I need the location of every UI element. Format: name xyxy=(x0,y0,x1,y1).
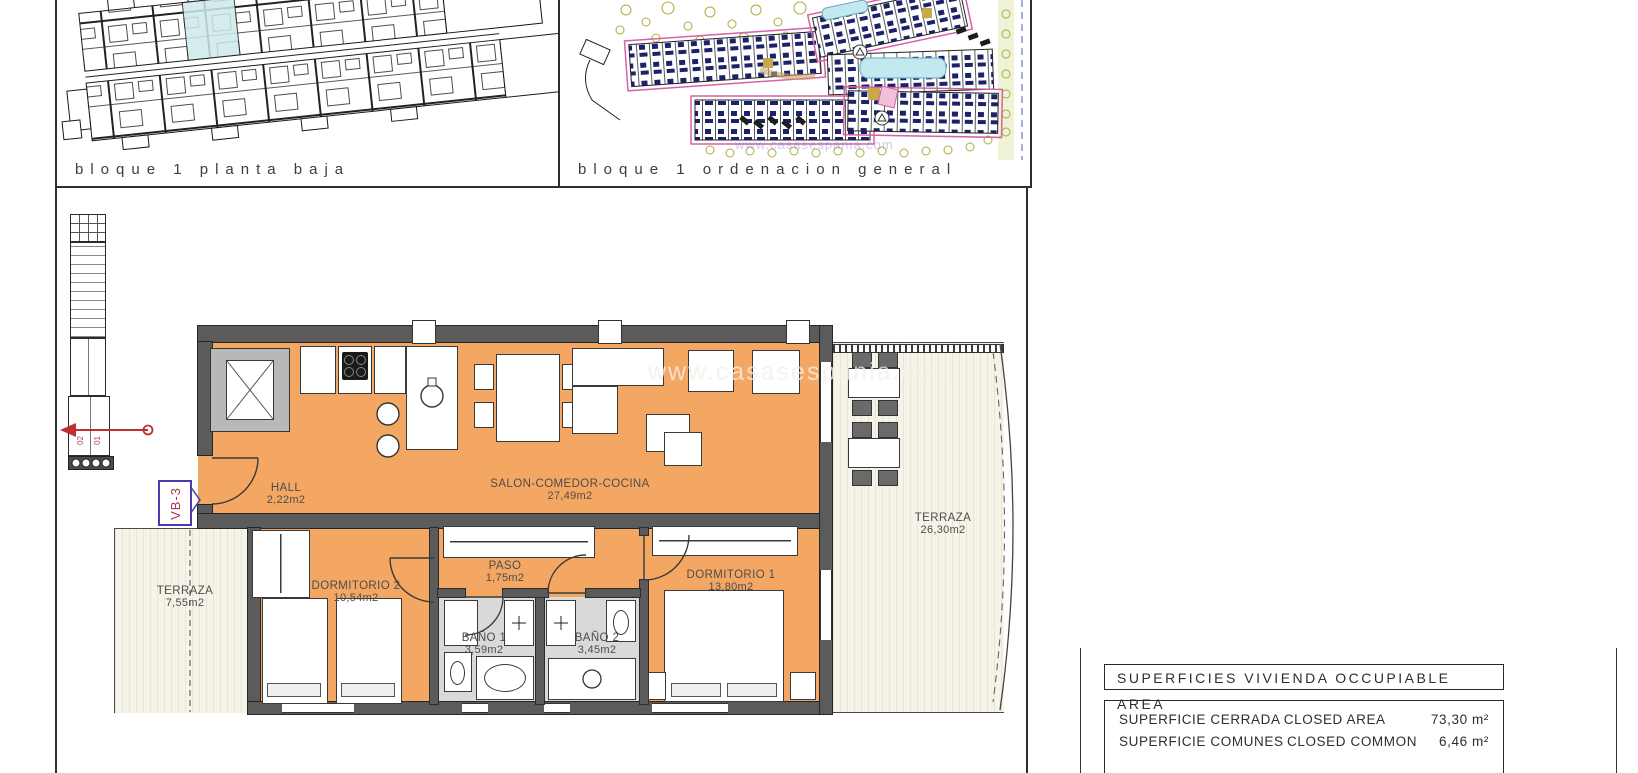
row-label-en: CLOSED COMMON xyxy=(1287,734,1437,749)
label-terraza-right: TERRAZA26,30m2 xyxy=(915,512,971,536)
pillar xyxy=(412,320,436,344)
row-value: 6,46 m² xyxy=(1437,734,1489,749)
areas-table-title: SUPERFICIES VIVIENDA OCCUPIABLE AREA xyxy=(1104,664,1504,690)
label-paso: PASO1,75m2 xyxy=(486,560,525,584)
nightstand xyxy=(790,672,816,700)
hall-closet xyxy=(443,526,595,558)
side-chair xyxy=(664,432,702,466)
label-dormitorio1: DORMITORIO 113,80m2 xyxy=(687,569,776,593)
row-label-es: SUPERFICIE COMUNES xyxy=(1119,734,1287,749)
toilet-bath1 xyxy=(444,652,472,692)
chair xyxy=(474,364,494,390)
partition-paso-c xyxy=(586,589,640,597)
label-bano2: BAÑO 23,45m2 xyxy=(575,632,620,656)
row-label-es: SUPERFICIE CERRADA xyxy=(1119,712,1284,727)
partition-dorm2 xyxy=(430,528,438,704)
dorm1-closet xyxy=(652,526,798,556)
terrace-left xyxy=(114,528,248,713)
stair-flight xyxy=(70,242,106,338)
dining-table xyxy=(496,354,560,442)
label-hall: HALL2,22m2 xyxy=(267,482,306,506)
watermark-site: www.casasespania.com xyxy=(735,137,894,152)
terrace-chair xyxy=(878,470,898,486)
pillar xyxy=(786,320,810,344)
wall-west-stub xyxy=(198,505,212,514)
sofa-chaise xyxy=(572,386,618,434)
caption-planta-baja: bloque 1 planta baja xyxy=(75,161,350,178)
unit-tag-vb3: VB-3 xyxy=(158,480,192,526)
panel-block1-general-plan: bloque 1 ordenacion general xyxy=(558,0,1032,188)
row-value: 73,30 m² xyxy=(1431,712,1489,727)
nightstand xyxy=(648,672,666,700)
elevator-box xyxy=(70,214,106,242)
stair-mark-02: 02 xyxy=(76,436,85,445)
building-outline-group xyxy=(57,0,558,156)
stair-lower xyxy=(68,396,110,456)
table-row: SUPERFICIE COMUNES CLOSED COMMON 6,46 m² xyxy=(1119,734,1489,749)
partition-baths xyxy=(536,597,544,704)
watermark-plan: www.casasespania.com xyxy=(648,358,955,387)
window-bath2 xyxy=(544,703,570,713)
label-dormitorio2: DORMITORIO 210,54m2 xyxy=(312,580,401,604)
fridge xyxy=(300,346,336,394)
window-bath1 xyxy=(462,703,488,713)
terrace-chair xyxy=(878,422,898,438)
areas-table: SUPERFICIE CERRADA CLOSED AREA 73,30 m² … xyxy=(1104,700,1504,773)
terrace-table xyxy=(848,438,900,468)
bed-double xyxy=(664,590,784,702)
shower-tray xyxy=(548,658,636,700)
sink-counter xyxy=(406,346,458,450)
site-color-drawing xyxy=(560,0,1030,160)
terrace-chair xyxy=(852,422,872,438)
partition-paso-b xyxy=(503,589,548,597)
sheet-frame-line-left xyxy=(1080,648,1081,773)
architectural-sheet: { "captions": { "left_panel": "bloque 1 … xyxy=(0,0,1638,773)
table-row: SUPERFICIE CERRADA CLOSED AREA 73,30 m² xyxy=(1119,712,1489,727)
panel-block1-ground-plan: bloque 1 planta baja xyxy=(55,0,560,188)
kitchen-counter xyxy=(374,346,406,394)
site-parcel-group xyxy=(580,0,1022,160)
partition-dorm1-top xyxy=(640,528,648,535)
dorm2-closet xyxy=(252,530,310,598)
wall-north xyxy=(198,326,832,342)
threshold-band xyxy=(68,456,114,470)
window-dorm1 xyxy=(652,703,728,713)
row-label-en: CLOSED AREA xyxy=(1284,712,1431,727)
label-bano1: BAÑO 13,59m2 xyxy=(462,632,507,656)
hob xyxy=(342,352,368,380)
terrace-chair xyxy=(852,470,872,486)
caption-ordenacion-general: bloque 1 ordenacion general xyxy=(578,161,957,178)
window-dorm1-terrace xyxy=(820,570,832,640)
stair-landing xyxy=(70,338,106,396)
label-salon: SALON-COMEDOR-COCINA27,49m2 xyxy=(490,478,649,502)
stair-mark-01: 01 xyxy=(93,436,102,445)
sheet-frame-line-right xyxy=(1616,648,1617,773)
pillar xyxy=(598,320,622,344)
sink-bath1 xyxy=(504,600,534,646)
bathtub xyxy=(476,656,534,700)
bed-single xyxy=(336,598,402,704)
bed-single xyxy=(262,598,328,704)
terrace-chair xyxy=(878,400,898,416)
label-terraza-left: TERRAZA7,55m2 xyxy=(157,585,213,609)
chair xyxy=(474,402,494,428)
window-dorm2 xyxy=(282,703,354,713)
sink-bath2 xyxy=(546,600,576,646)
partition-paso-a xyxy=(438,589,465,597)
terrace-chair xyxy=(852,400,872,416)
partition-dorm1 xyxy=(640,580,648,704)
shaft-inner xyxy=(226,360,274,420)
unit-tag-text: VB-3 xyxy=(168,487,183,520)
site-line-drawing xyxy=(57,0,558,160)
